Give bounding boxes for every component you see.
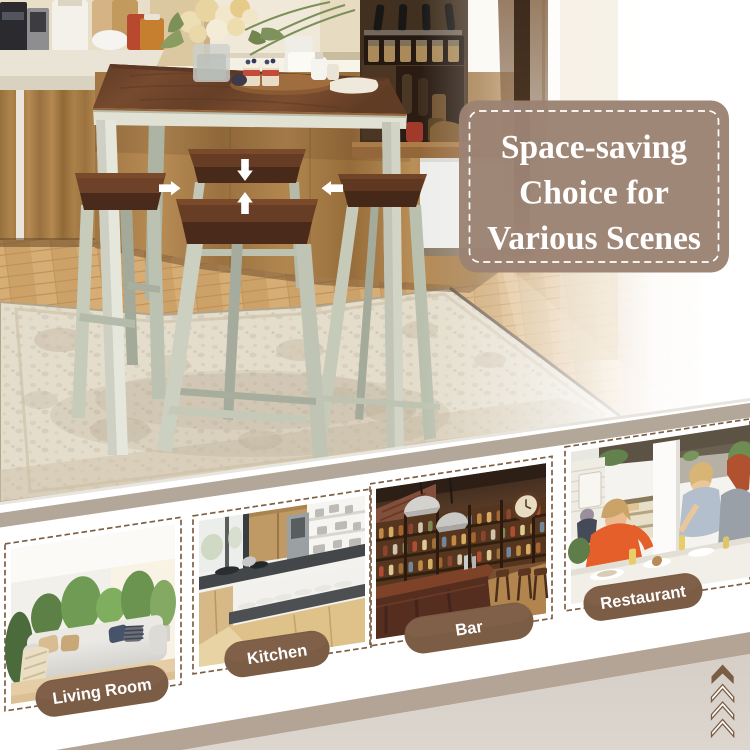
- svg-text:Choice for: Choice for: [519, 175, 669, 212]
- svg-text:Space-saving: Space-saving: [501, 129, 687, 166]
- svg-text:Various Scenes: Various Scenes: [487, 220, 701, 257]
